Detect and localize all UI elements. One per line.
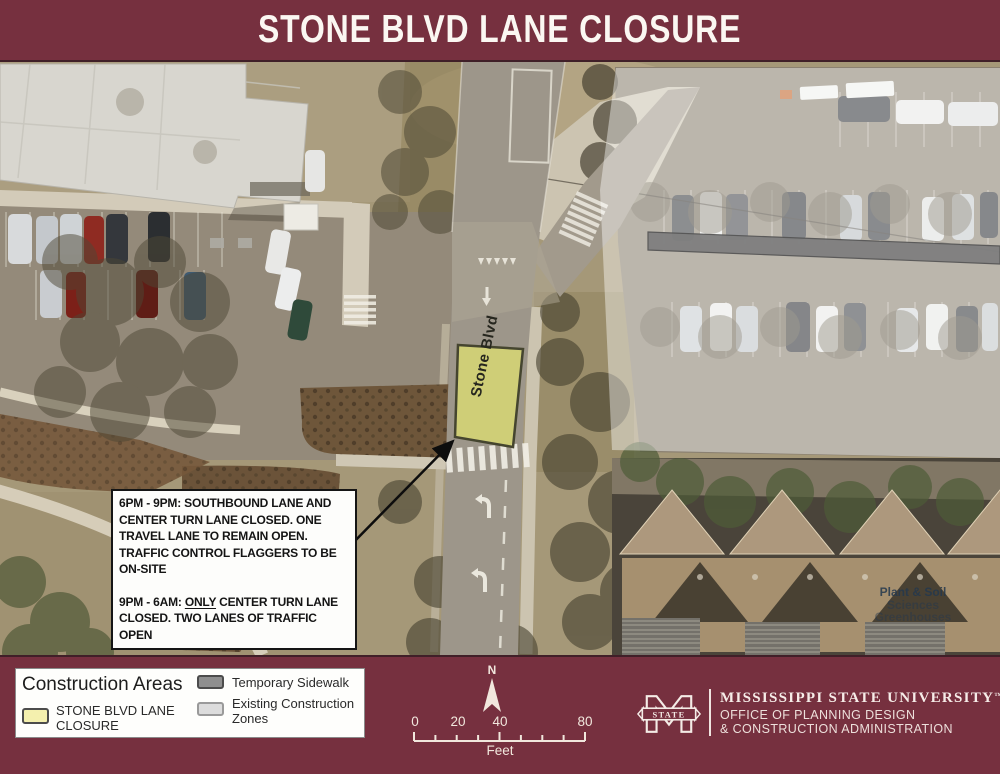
existing-construction-overlay: [600, 68, 1000, 458]
temporary-sidewalk-swatch: [197, 675, 224, 689]
scale-bar: 0 20 40 80 Feet: [412, 714, 588, 758]
north-label: N: [478, 663, 506, 677]
map-area: Stone Blvd Plant & Soil Sciences Greenho…: [0, 62, 1000, 655]
legend-title: Construction Areas: [22, 674, 183, 696]
msu-logo: STATE: [637, 688, 701, 740]
legend: Construction Areas STONE BLVD LANE CLOSU…: [15, 668, 365, 738]
university-name: MISSISSIPPI STATE UNIVERSITY™: [720, 690, 1000, 707]
callout-para2: 9PM - 6AM: ONLY CENTER TURN LANE CLOSED.…: [119, 594, 350, 644]
lane-closure-plan: STONE BLVD LANE CLOSURE: [0, 0, 1000, 774]
north-arrow-icon: [480, 678, 504, 714]
office-line1: OFFICE OF PLANNING DESIGN: [720, 709, 1000, 722]
page-title: STONE BLVD LANE CLOSURE: [258, 8, 741, 52]
msu-logo-text: STATE: [652, 709, 685, 719]
branding: STATE MISSISSIPPI STATE UNIVERSITY™ OFFI…: [637, 688, 1000, 740]
callout-para1: 6PM - 9PM: SOUTHBOUND LANE AND CENTER TU…: [119, 495, 350, 578]
footer: Construction Areas STONE BLVD LANE CLOSU…: [0, 655, 1000, 774]
title-bar: STONE BLVD LANE CLOSURE: [0, 0, 1000, 62]
svg-text:Plant & Soil: Plant & Soil: [880, 585, 947, 599]
office-line2: & CONSTRUCTION ADMINISTRATION: [720, 723, 1000, 736]
trademark: ™: [994, 691, 1000, 700]
north-arrow: N: [478, 663, 506, 714]
closure-label: STONE BLVD LANE CLOSURE: [56, 703, 175, 733]
scale-labels: 0 20 40 80: [412, 714, 588, 728]
svg-text:Greenhouses: Greenhouses: [875, 610, 952, 624]
scale-ticks: [412, 730, 588, 742]
scale-unit: Feet: [412, 743, 588, 758]
brand-text: MISSISSIPPI STATE UNIVERSITY™ OFFICE OF …: [720, 688, 1000, 735]
temporary-sidewalk-label: Temporary Sidewalk: [232, 675, 349, 690]
logo-divider: [709, 689, 711, 736]
existing-zone-label: Existing Construction Zones: [232, 696, 354, 726]
existing-zone-swatch: [197, 702, 224, 716]
closure-swatch: [22, 708, 49, 724]
underlined-only: ONLY: [185, 595, 216, 609]
closure-callout: 6PM - 9PM: SOUTHBOUND LANE AND CENTER TU…: [111, 489, 357, 650]
